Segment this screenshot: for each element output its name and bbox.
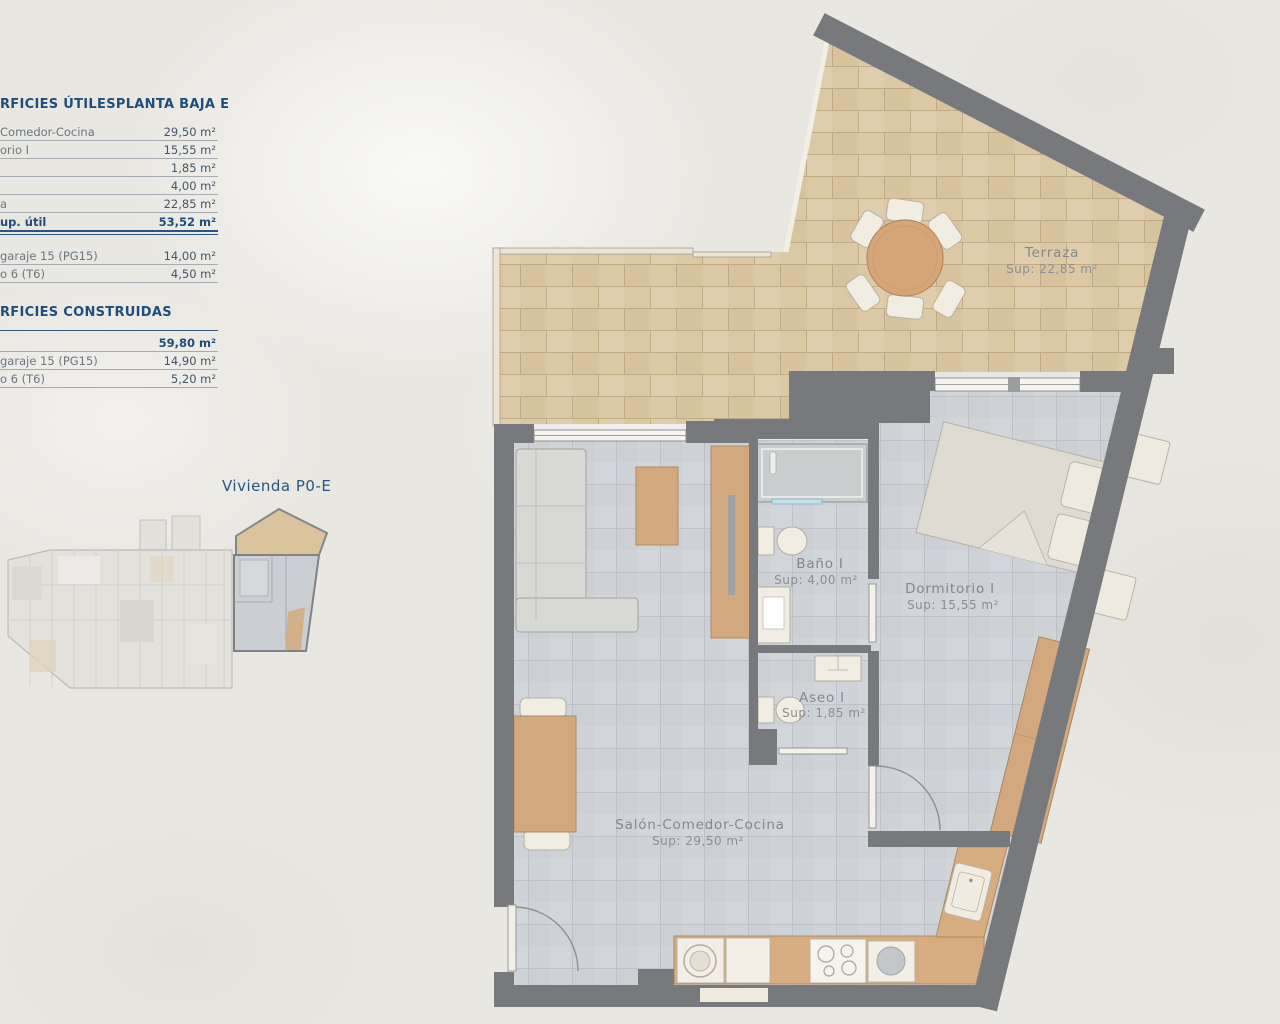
- table2-header: RFICIES CONSTRUIDAS: [0, 305, 218, 320]
- surface-row-value: 59,80 m²: [159, 336, 216, 350]
- bano-right-wall: [868, 419, 879, 579]
- surface-row-value: 4,50 m²: [171, 267, 216, 281]
- room-sup-terraza: Sup: 22,85 m²: [1006, 262, 1098, 276]
- surface-row-label: orio I: [0, 143, 29, 157]
- coffee-table: [636, 467, 678, 545]
- floorplan-sheet: { "panel": { "t1": { "header_left": "RFI…: [0, 0, 1280, 1024]
- right-wall-notch: [1146, 348, 1174, 374]
- terrace-floor: [496, 24, 1190, 424]
- table1-header: RFICIES ÚTILES PLANTA BAJA E: [0, 97, 218, 112]
- apartment-plan: Terraza Sup: 22,85 m² Baño I Sup: 4,00 m…: [493, 24, 1190, 1007]
- surface-row: up. útil53,52 m²: [0, 213, 218, 232]
- table1-header-left: RFICIES ÚTILES: [0, 97, 116, 112]
- surface-row-label: up. útil: [0, 215, 46, 229]
- room-sup-dormitorio: Sup: 15,55 m²: [907, 598, 999, 612]
- room-label-aseo: Aseo I: [799, 690, 845, 706]
- salon-top-wall-left: [494, 424, 534, 443]
- mini-structure: [172, 516, 200, 552]
- kitchen-cabinet: [726, 938, 770, 983]
- room-sup-aseo: Sup: 1,85 m²: [782, 706, 866, 720]
- table2-rows: 59,80 m²garaje 15 (PG15)14,90 m²o 6 (T6)…: [0, 330, 218, 388]
- aseo-bottom-wall: [749, 729, 777, 765]
- surface-row-label: a: [0, 197, 7, 211]
- room-label-bano: Baño I: [796, 556, 843, 572]
- room-sup-salon: Sup: 29,50 m²: [652, 834, 744, 848]
- surface-row-label: garaje 15 (PG15): [0, 249, 98, 263]
- dorm-window-mullion: [1008, 377, 1020, 392]
- aseo-door-leaf: [779, 748, 847, 754]
- stove: [810, 939, 866, 983]
- terrace-parapet-left: [493, 248, 500, 426]
- surface-row: orio I15,55 m²: [0, 141, 218, 159]
- dorm-top-wall-right: [1080, 371, 1152, 392]
- bano-door-leaf: [869, 584, 876, 642]
- surface-row-value: 4,00 m²: [171, 179, 216, 193]
- hall-right-wall: [868, 651, 879, 766]
- room-label-dormitorio: Dormitorio I: [905, 581, 995, 597]
- mini-unit-room: [240, 560, 268, 596]
- surface-row: 4,00 m²: [0, 177, 218, 195]
- surface-row: a22,85 m²: [0, 195, 218, 213]
- surface-row-value: 53,52 m²: [159, 215, 216, 229]
- left-outer-wall: [494, 424, 514, 907]
- terrace-parapet-top: [493, 248, 693, 254]
- dorm-door-leaf: [869, 766, 876, 828]
- mini-structure: [140, 520, 166, 552]
- dorm-bottom-wall: [868, 831, 1010, 847]
- surface-row-value: 22,85 m²: [164, 197, 216, 211]
- table1-header-right: PLANTA BAJA E: [116, 97, 231, 112]
- bano-aseo-left-wall: [749, 438, 758, 734]
- surface-tables-panel: RFICIES ÚTILES PLANTA BAJA E Comedor-Coc…: [0, 97, 218, 388]
- table1-rows: Comedor-Cocina29,50 m²orio I15,55 m²1,85…: [0, 123, 218, 232]
- shower: [757, 444, 867, 504]
- threshold: [700, 988, 768, 1002]
- bano-toilet: [758, 527, 807, 555]
- dorm-top-wall-left: [868, 371, 935, 391]
- terrace-parapet-step: [693, 252, 771, 257]
- surface-row: o 6 (T6)4,50 m²: [0, 265, 218, 283]
- surface-row: garaje 15 (PG15)14,00 m²: [0, 247, 218, 265]
- surface-row-value: 14,00 m²: [164, 249, 216, 263]
- kitchen-appliance: [868, 941, 915, 982]
- shower-glass: [772, 499, 822, 504]
- room-sup-bano: Sup: 4,00 m²: [774, 573, 858, 587]
- tv-cabinet: [711, 446, 750, 638]
- surface-row: 59,80 m²: [0, 330, 218, 352]
- surface-row-label: garaje 15 (PG15): [0, 354, 98, 368]
- aseo-sink: [815, 656, 861, 681]
- surface-row: garaje 15 (PG15)14,90 m²: [0, 352, 218, 370]
- surface-row-value: 5,20 m²: [171, 372, 216, 386]
- surface-row-value: 29,50 m²: [164, 125, 216, 139]
- room-label-salon: Salón-Comedor-Cocina: [615, 817, 785, 833]
- surface-row-value: 15,55 m²: [164, 143, 216, 157]
- surface-row-label: o 6 (T6): [0, 372, 45, 386]
- left-outer-wall-lower: [494, 972, 514, 1007]
- surface-row: 1,85 m²: [0, 159, 218, 177]
- entry-door-leaf: [508, 905, 516, 971]
- room-label-terraza: Terraza: [1024, 245, 1079, 261]
- mini-key-plan: [8, 509, 327, 688]
- table1-annex-rows: garaje 15 (PG15)14,00 m²o 6 (T6)4,50 m²: [0, 247, 218, 283]
- bano-aseo-divider-wall: [749, 645, 871, 653]
- surface-row-label: o 6 (T6): [0, 267, 45, 281]
- surface-row: o 6 (T6)5,20 m²: [0, 370, 218, 388]
- surface-row-value: 1,85 m²: [171, 161, 216, 175]
- mini-unit-terrace: [236, 509, 327, 555]
- surface-row: Comedor-Cocina29,50 m²: [0, 123, 218, 141]
- dining-table-set: [514, 698, 576, 850]
- unit-title: Vivienda P0-E: [222, 477, 331, 495]
- bottom-wall-step: [638, 969, 674, 985]
- surface-row-value: 14,90 m²: [164, 354, 216, 368]
- bano-sink: [757, 587, 790, 643]
- surface-row-label: Comedor-Cocina: [0, 125, 95, 139]
